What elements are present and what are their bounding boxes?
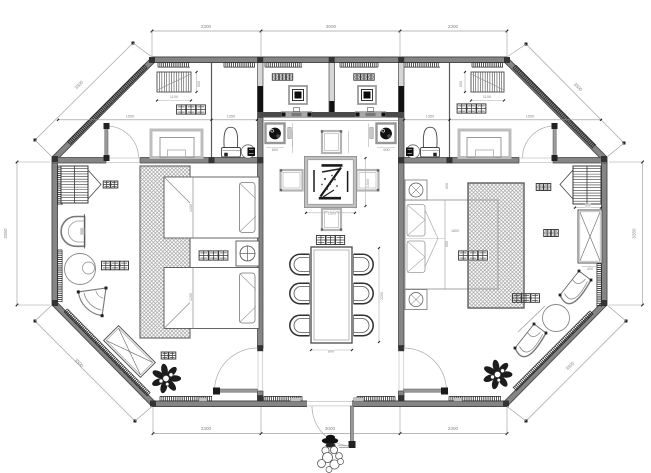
svg-text:1500: 1500 — [526, 115, 534, 119]
svg-text:500: 500 — [459, 81, 463, 87]
svg-text:400: 400 — [587, 267, 593, 271]
svg-text:1500: 1500 — [126, 115, 134, 119]
svg-text:1100: 1100 — [483, 95, 491, 99]
svg-text:600: 600 — [383, 148, 389, 152]
svg-text:2300: 2300 — [201, 426, 212, 431]
svg-text:2300: 2300 — [448, 426, 459, 431]
svg-text:600: 600 — [272, 148, 278, 152]
svg-text:1500: 1500 — [366, 179, 370, 187]
svg-text:1800: 1800 — [451, 229, 459, 233]
svg-text:3350: 3350 — [632, 228, 637, 239]
svg-text:600: 600 — [445, 241, 449, 247]
svg-text:2300: 2300 — [448, 24, 459, 29]
svg-text:3350: 3350 — [3, 228, 8, 239]
svg-text:3000: 3000 — [325, 426, 336, 431]
svg-text:600: 600 — [328, 349, 334, 353]
svg-text:600: 600 — [445, 183, 449, 189]
svg-text:1350: 1350 — [227, 115, 235, 119]
svg-text:1200: 1200 — [189, 293, 193, 301]
svg-text:2300: 2300 — [201, 24, 212, 29]
svg-text:1200: 1200 — [189, 204, 193, 212]
svg-text:3000: 3000 — [326, 24, 337, 29]
svg-text:1500: 1500 — [328, 212, 336, 216]
svg-text:1100: 1100 — [170, 95, 178, 99]
svg-text:2200: 2200 — [380, 292, 384, 300]
svg-text:1350: 1350 — [426, 115, 434, 119]
svg-text:600: 600 — [585, 204, 591, 208]
svg-text:500: 500 — [197, 81, 201, 87]
